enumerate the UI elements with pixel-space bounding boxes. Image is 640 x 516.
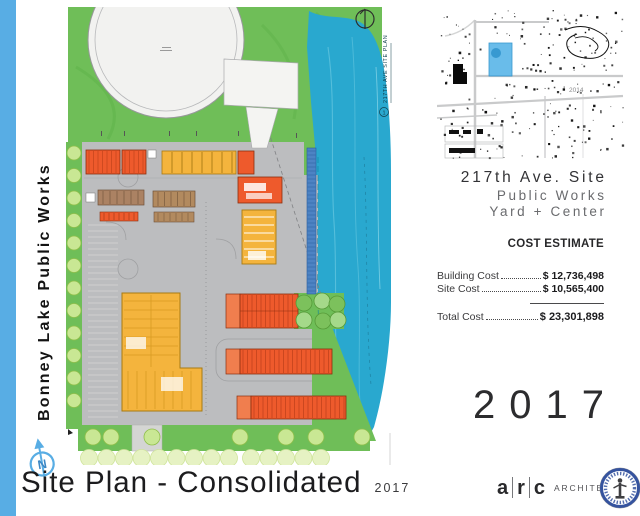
arc-letter-a: a	[497, 478, 508, 498]
accent-stripe	[0, 0, 16, 516]
sheet-title-year: 2017	[375, 481, 411, 495]
arc-letter-c: c	[534, 478, 545, 498]
year-large: 2017	[473, 383, 618, 428]
project-title: 217th Ave. Site	[461, 169, 607, 187]
presentation-sheet: Bonney Lake Public Works	[0, 0, 640, 516]
logo-divider	[512, 477, 513, 498]
cost-label: Site Cost	[437, 283, 480, 295]
dotted-leader	[482, 283, 541, 292]
map-contour-swirl	[565, 26, 609, 58]
building-yellow-mid	[242, 210, 276, 264]
total-value: $ 23,301,898	[540, 311, 604, 323]
cost-row-site: Site Cost $ 10,565,400	[437, 283, 604, 295]
project-subtitle-2: Yard + Center	[489, 204, 606, 219]
blue-strip-building	[307, 148, 316, 294]
cost-estimate-heading: COST ESTIMATE	[508, 238, 604, 250]
city-seal-icon	[599, 463, 640, 513]
cost-value: $ 10,565,400	[543, 283, 604, 295]
sheet-title-block: Site Plan - Consolidated 2017	[21, 466, 410, 500]
arc-letter-r: r	[517, 478, 525, 498]
logo-divider	[529, 477, 530, 498]
plan-title-label: 217TH AVE SITE PLAN	[383, 35, 389, 103]
cost-row-building: Building Cost $ 12,736,498	[437, 270, 604, 282]
total-divider	[530, 303, 604, 304]
plan-number-label: 1	[382, 110, 385, 116]
sidebar-vertical-label: Bonney Lake Public Works	[33, 138, 57, 446]
building-orange-mid	[238, 177, 282, 203]
project-subtitle-1: Public Works	[497, 188, 607, 203]
vicinity-map: 2014	[437, 8, 625, 162]
dotted-leader	[486, 311, 538, 320]
cost-row-total: Total Cost $ 23,301,898	[437, 311, 604, 323]
total-label: Total Cost	[437, 311, 484, 323]
site-plan-drawing: 217TH AVE SITE PLAN 1	[66, 7, 394, 465]
map-year-label: 2014	[569, 87, 584, 94]
cost-value: $ 12,736,498	[543, 270, 604, 282]
map-parcels	[445, 26, 609, 158]
map-building-specks	[440, 10, 624, 159]
site-parcel-highlight	[489, 43, 512, 76]
cost-label: Building Cost	[437, 270, 499, 282]
map-roads	[437, 20, 623, 158]
dotted-leader	[501, 270, 541, 279]
sheet-title: Site Plan - Consolidated	[21, 466, 362, 500]
